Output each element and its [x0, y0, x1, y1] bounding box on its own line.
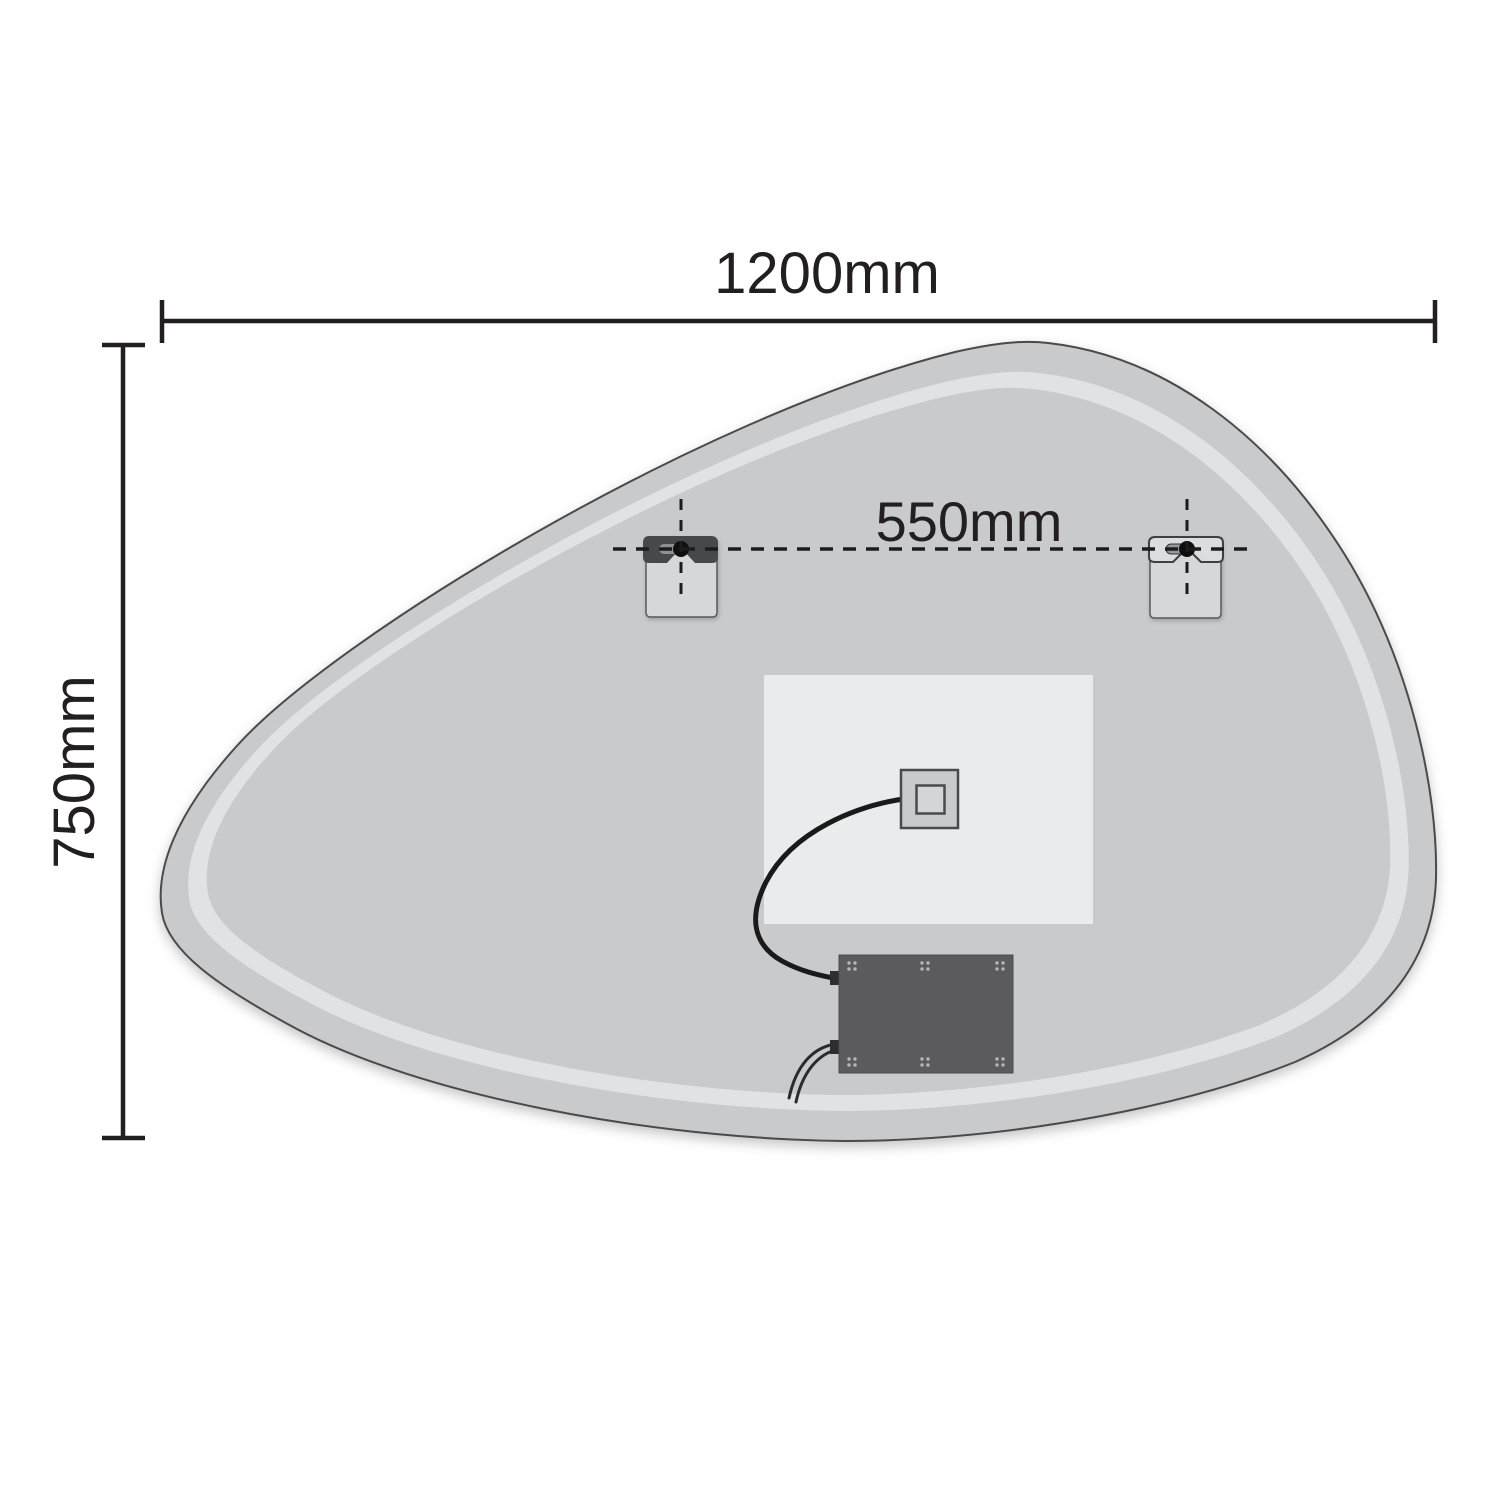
height-label: 750mm: [42, 675, 107, 868]
diagram-canvas: 550mm: [0, 0, 1500, 1500]
height-dimension: 750mm: [42, 345, 145, 1138]
driver-box-body: [839, 955, 1013, 1073]
bracket-spacing-label: 550mm: [876, 490, 1063, 553]
width-dimension: 1200mm: [162, 241, 1435, 343]
width-label: 1200mm: [714, 241, 940, 306]
junction-box-inner: [917, 786, 945, 814]
mirror-dimension-diagram: 550mm: [0, 0, 1500, 1500]
